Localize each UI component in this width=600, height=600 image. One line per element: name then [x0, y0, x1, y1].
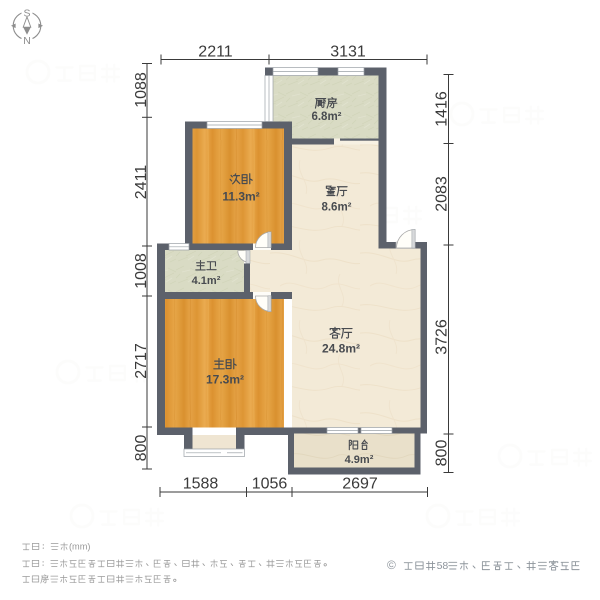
svg-text:N: N	[23, 35, 31, 47]
svg-text:800: 800	[434, 440, 451, 467]
svg-text:©: ©	[387, 558, 396, 572]
svg-text:1088: 1088	[133, 72, 150, 108]
svg-text:2697: 2697	[342, 476, 378, 493]
svg-text:(mm): (mm)	[69, 542, 90, 552]
svg-text:4.9m²: 4.9m²	[345, 454, 374, 466]
svg-text:1588: 1588	[183, 476, 219, 493]
svg-text:3131: 3131	[330, 44, 366, 61]
svg-text:2411: 2411	[133, 165, 150, 200]
svg-text:11.3m²: 11.3m²	[222, 190, 259, 204]
svg-text:1008: 1008	[133, 253, 150, 289]
svg-text:2083: 2083	[434, 176, 451, 212]
svg-text:6.8m²: 6.8m²	[311, 111, 341, 123]
svg-text:24.8m²: 24.8m²	[322, 342, 360, 356]
svg-text:1056: 1056	[252, 476, 288, 493]
svg-text:4.1m²: 4.1m²	[192, 275, 221, 287]
svg-text:3726: 3726	[434, 319, 451, 355]
svg-text:800: 800	[133, 435, 150, 462]
svg-text:58: 58	[437, 560, 449, 572]
svg-text:2211: 2211	[198, 44, 233, 61]
svg-text:1416: 1416	[434, 91, 451, 127]
svg-text:8.6m²: 8.6m²	[321, 202, 351, 214]
svg-text:2717: 2717	[133, 343, 150, 379]
svg-text:17.3m²: 17.3m²	[206, 373, 244, 387]
